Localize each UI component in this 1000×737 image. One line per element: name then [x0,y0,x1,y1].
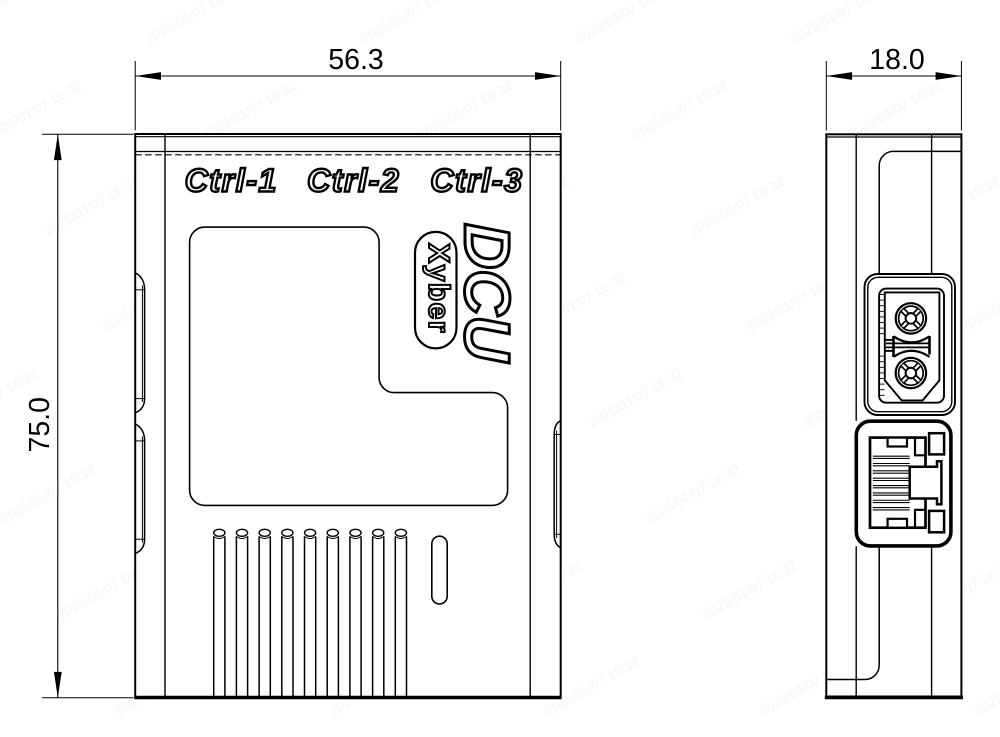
svg-text:Ctrl-1: Ctrl-1 [185,163,278,199]
svg-text:56.3: 56.3 [328,44,383,76]
svg-text:DCU: DCU [451,223,523,363]
svg-text:18.0: 18.0 [869,44,924,76]
svg-text:Ctrl-2: Ctrl-2 [307,163,400,199]
svg-text:Xyber: Xyber [422,243,455,334]
svg-text:75.0: 75.0 [24,397,56,452]
svg-text:Ctrl-3: Ctrl-3 [430,163,523,199]
